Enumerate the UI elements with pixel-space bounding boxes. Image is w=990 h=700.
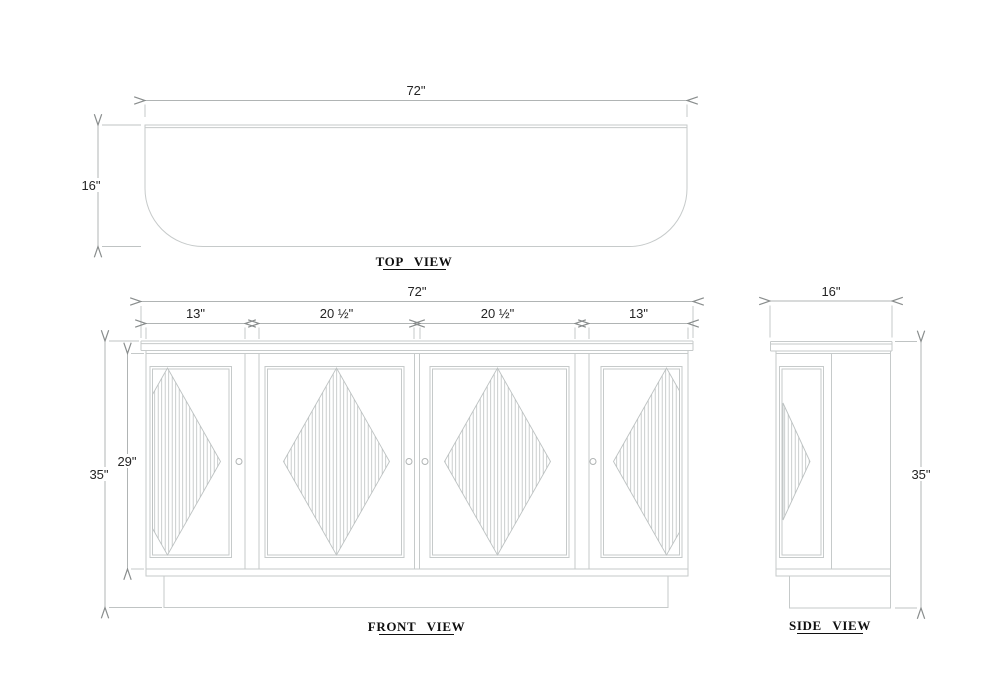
dim-label-side-height: 35" [911,467,930,482]
front-door-2 [265,367,412,558]
front-door-4 [590,367,682,558]
front-plinth [164,576,668,608]
technical-drawing-sheet: 72" 16" TOP VIEW 72" [0,0,990,700]
top-view: 72" 16" TOP VIEW [77,83,687,270]
door-2-knob [406,459,412,465]
door-4-knob [590,459,596,465]
dim-label-door-1-width: 13" [186,306,205,321]
door-4-diamond-clipped [614,368,680,555]
dim-label-front-width: 72" [407,284,426,299]
door-3-knob [422,459,428,465]
dim-label-side-depth: 16" [821,284,840,299]
side-view-title: SIDE VIEW [789,618,871,633]
section-dimensions: 13" 20 ½" 20 ½" 13" [146,306,688,339]
dim-label-door-3-width: 20 ½" [481,306,515,321]
door-1-knob [236,459,242,465]
top-view-title: TOP VIEW [376,254,453,269]
dim-label-door-4-width: 13" [629,306,648,321]
dim-label-door-2-width: 20 ½" [320,306,354,321]
side-half-diamond [783,403,810,520]
side-view: 16" 35" SIDE VIEW [770,284,936,634]
door-2-diamond [284,368,390,555]
front-view: 72" 13" 20 ½" 20 ½" 13" [84,284,693,635]
furniture-dimension-drawing: 72" 16" TOP VIEW 72" [0,0,990,700]
dim-label-door-height: 29" [117,454,136,469]
door-1-diamond-clipped [153,368,221,555]
door-3-diamond [445,368,551,555]
front-door-3 [422,367,569,558]
top-view-outline [145,125,687,247]
dim-label-top-width: 72" [406,83,425,98]
side-top-molding [771,342,893,354]
side-plinth [790,576,891,608]
front-view-title: FRONT VIEW [368,619,465,634]
front-top-molding [141,341,693,354]
front-door-1 [150,367,242,558]
dim-label-front-height: 35" [89,467,108,482]
front-cabinet-body [146,354,688,577]
dim-label-top-depth: 16" [81,178,100,193]
